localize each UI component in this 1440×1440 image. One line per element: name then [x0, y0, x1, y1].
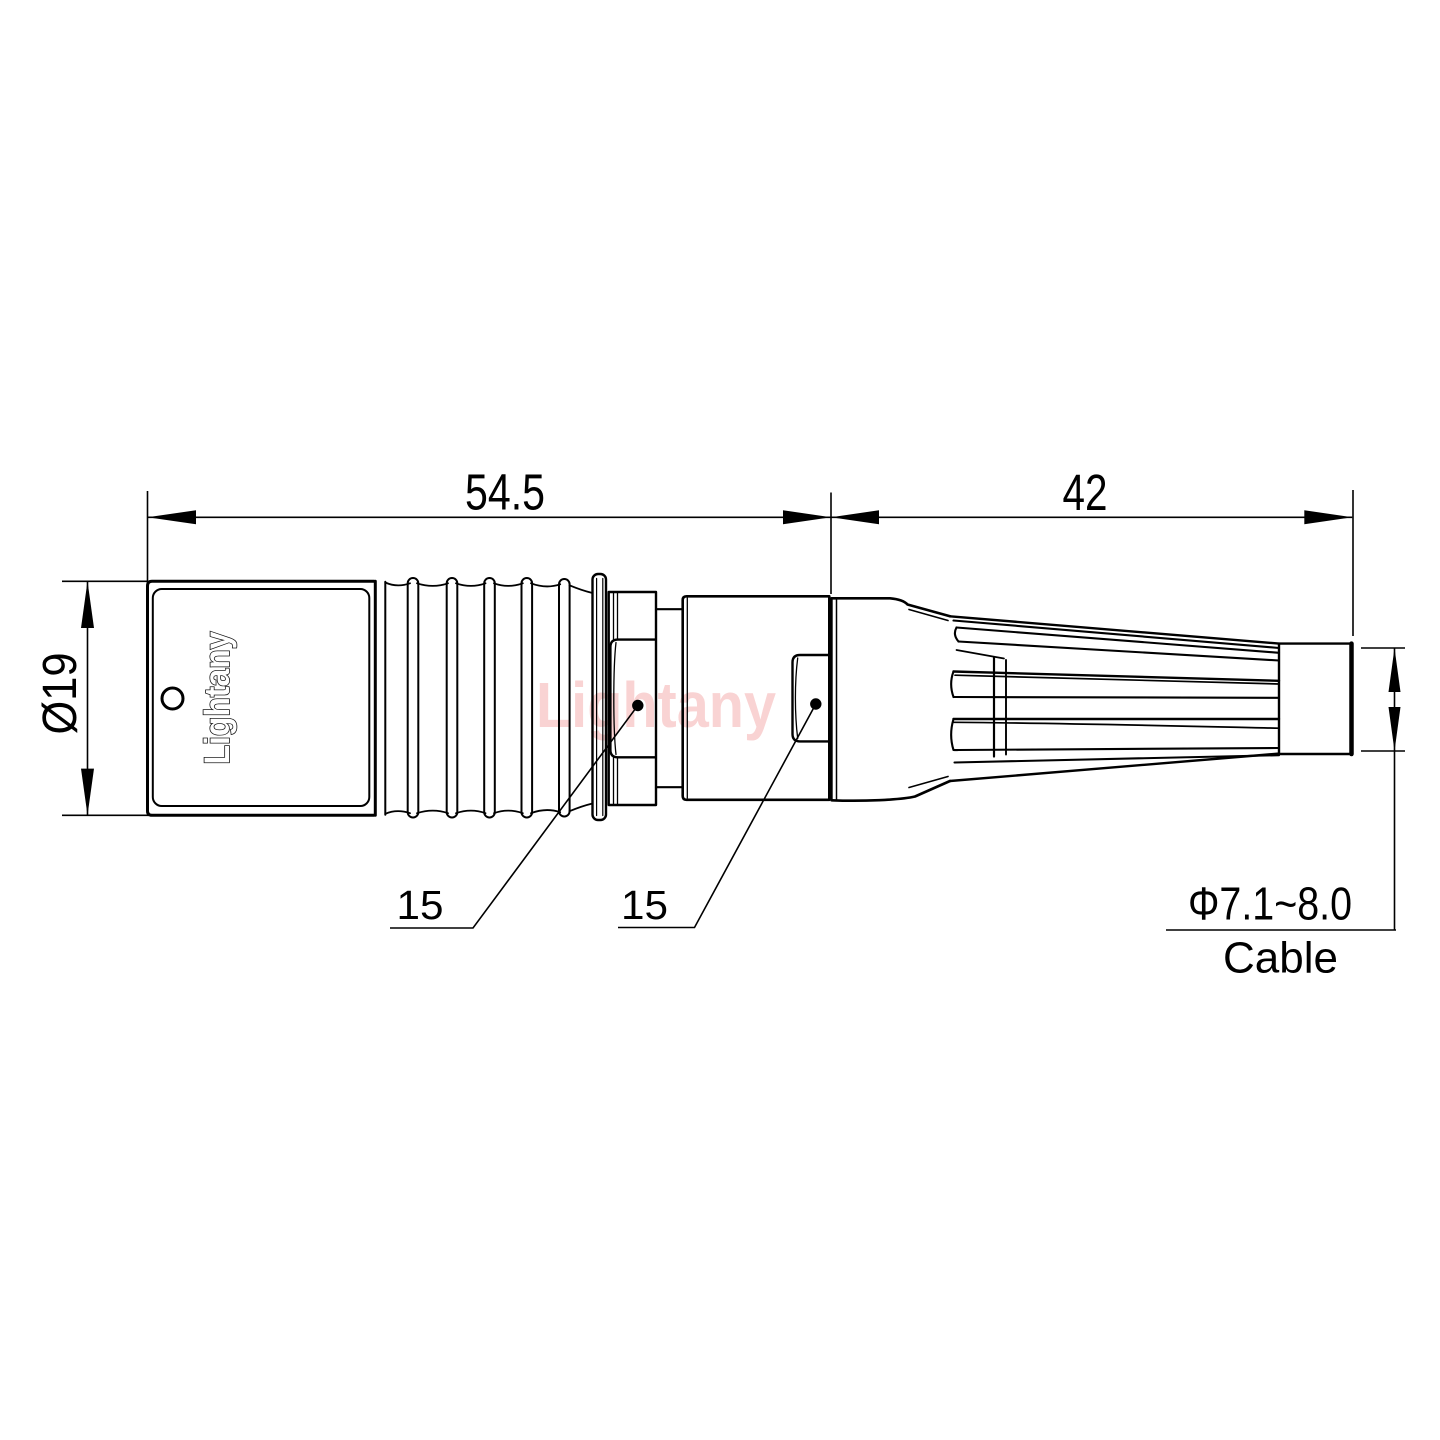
svg-text:42: 42	[1063, 464, 1108, 521]
svg-text:Ø19: Ø19	[34, 653, 87, 735]
svg-text:15: 15	[397, 882, 444, 928]
svg-text:Lightany: Lightany	[198, 631, 237, 764]
svg-text:54.5: 54.5	[465, 464, 545, 521]
svg-text:Φ7.1~8.0: Φ7.1~8.0	[1188, 878, 1352, 930]
svg-text:Cable: Cable	[1223, 934, 1338, 983]
svg-text:15: 15	[621, 882, 668, 928]
